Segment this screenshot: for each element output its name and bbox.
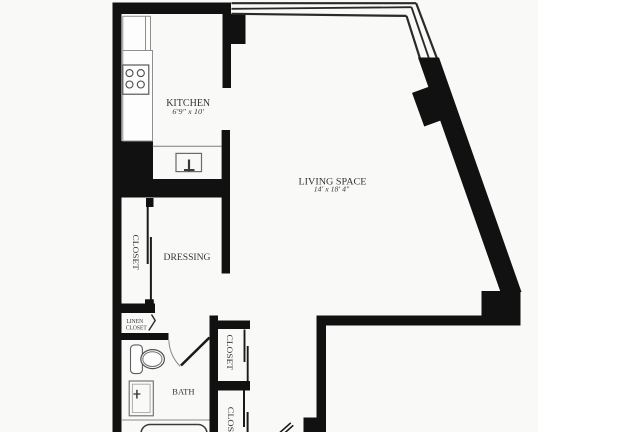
svg-text:CLOSET: CLOSET xyxy=(126,325,147,332)
svg-text:6′9″ x 10′: 6′9″ x 10′ xyxy=(172,107,204,116)
svg-text:CLOSET: CLOSET xyxy=(131,234,141,270)
svg-text:BATH: BATH xyxy=(172,387,195,397)
svg-text:CLOSET: CLOSET xyxy=(226,407,236,432)
svg-text:DRESSING: DRESSING xyxy=(164,252,211,263)
svg-text:14′ x 18′ 4″: 14′ x 18′ 4″ xyxy=(314,185,350,194)
svg-text:CLOSET: CLOSET xyxy=(225,335,235,371)
